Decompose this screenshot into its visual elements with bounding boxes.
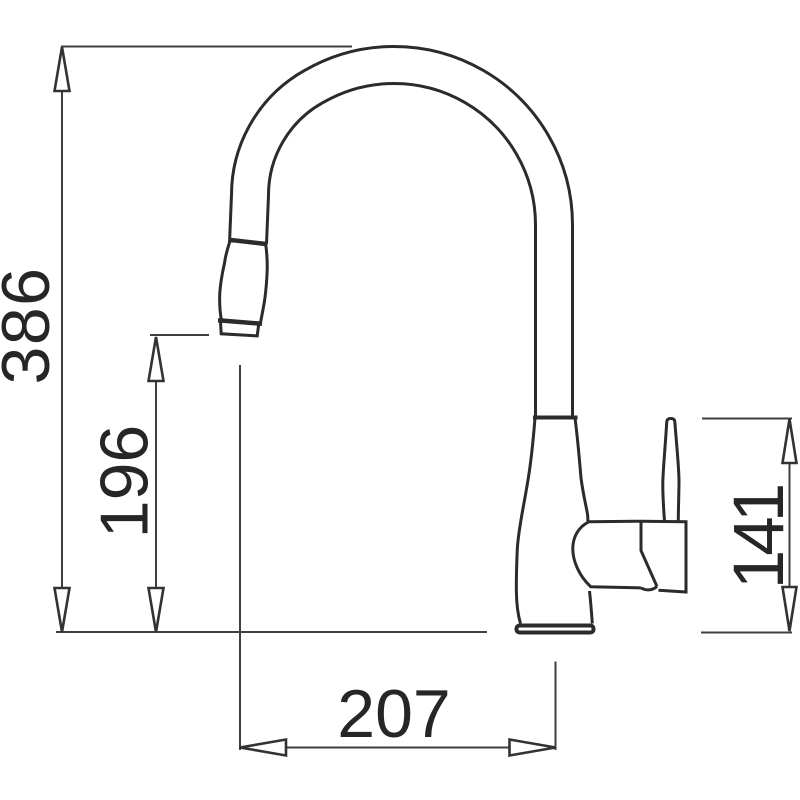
svg-text:141: 141 xyxy=(720,485,799,589)
svg-text:386: 386 xyxy=(0,267,64,385)
svg-text:196: 196 xyxy=(87,425,163,538)
svg-text:207: 207 xyxy=(337,676,450,752)
